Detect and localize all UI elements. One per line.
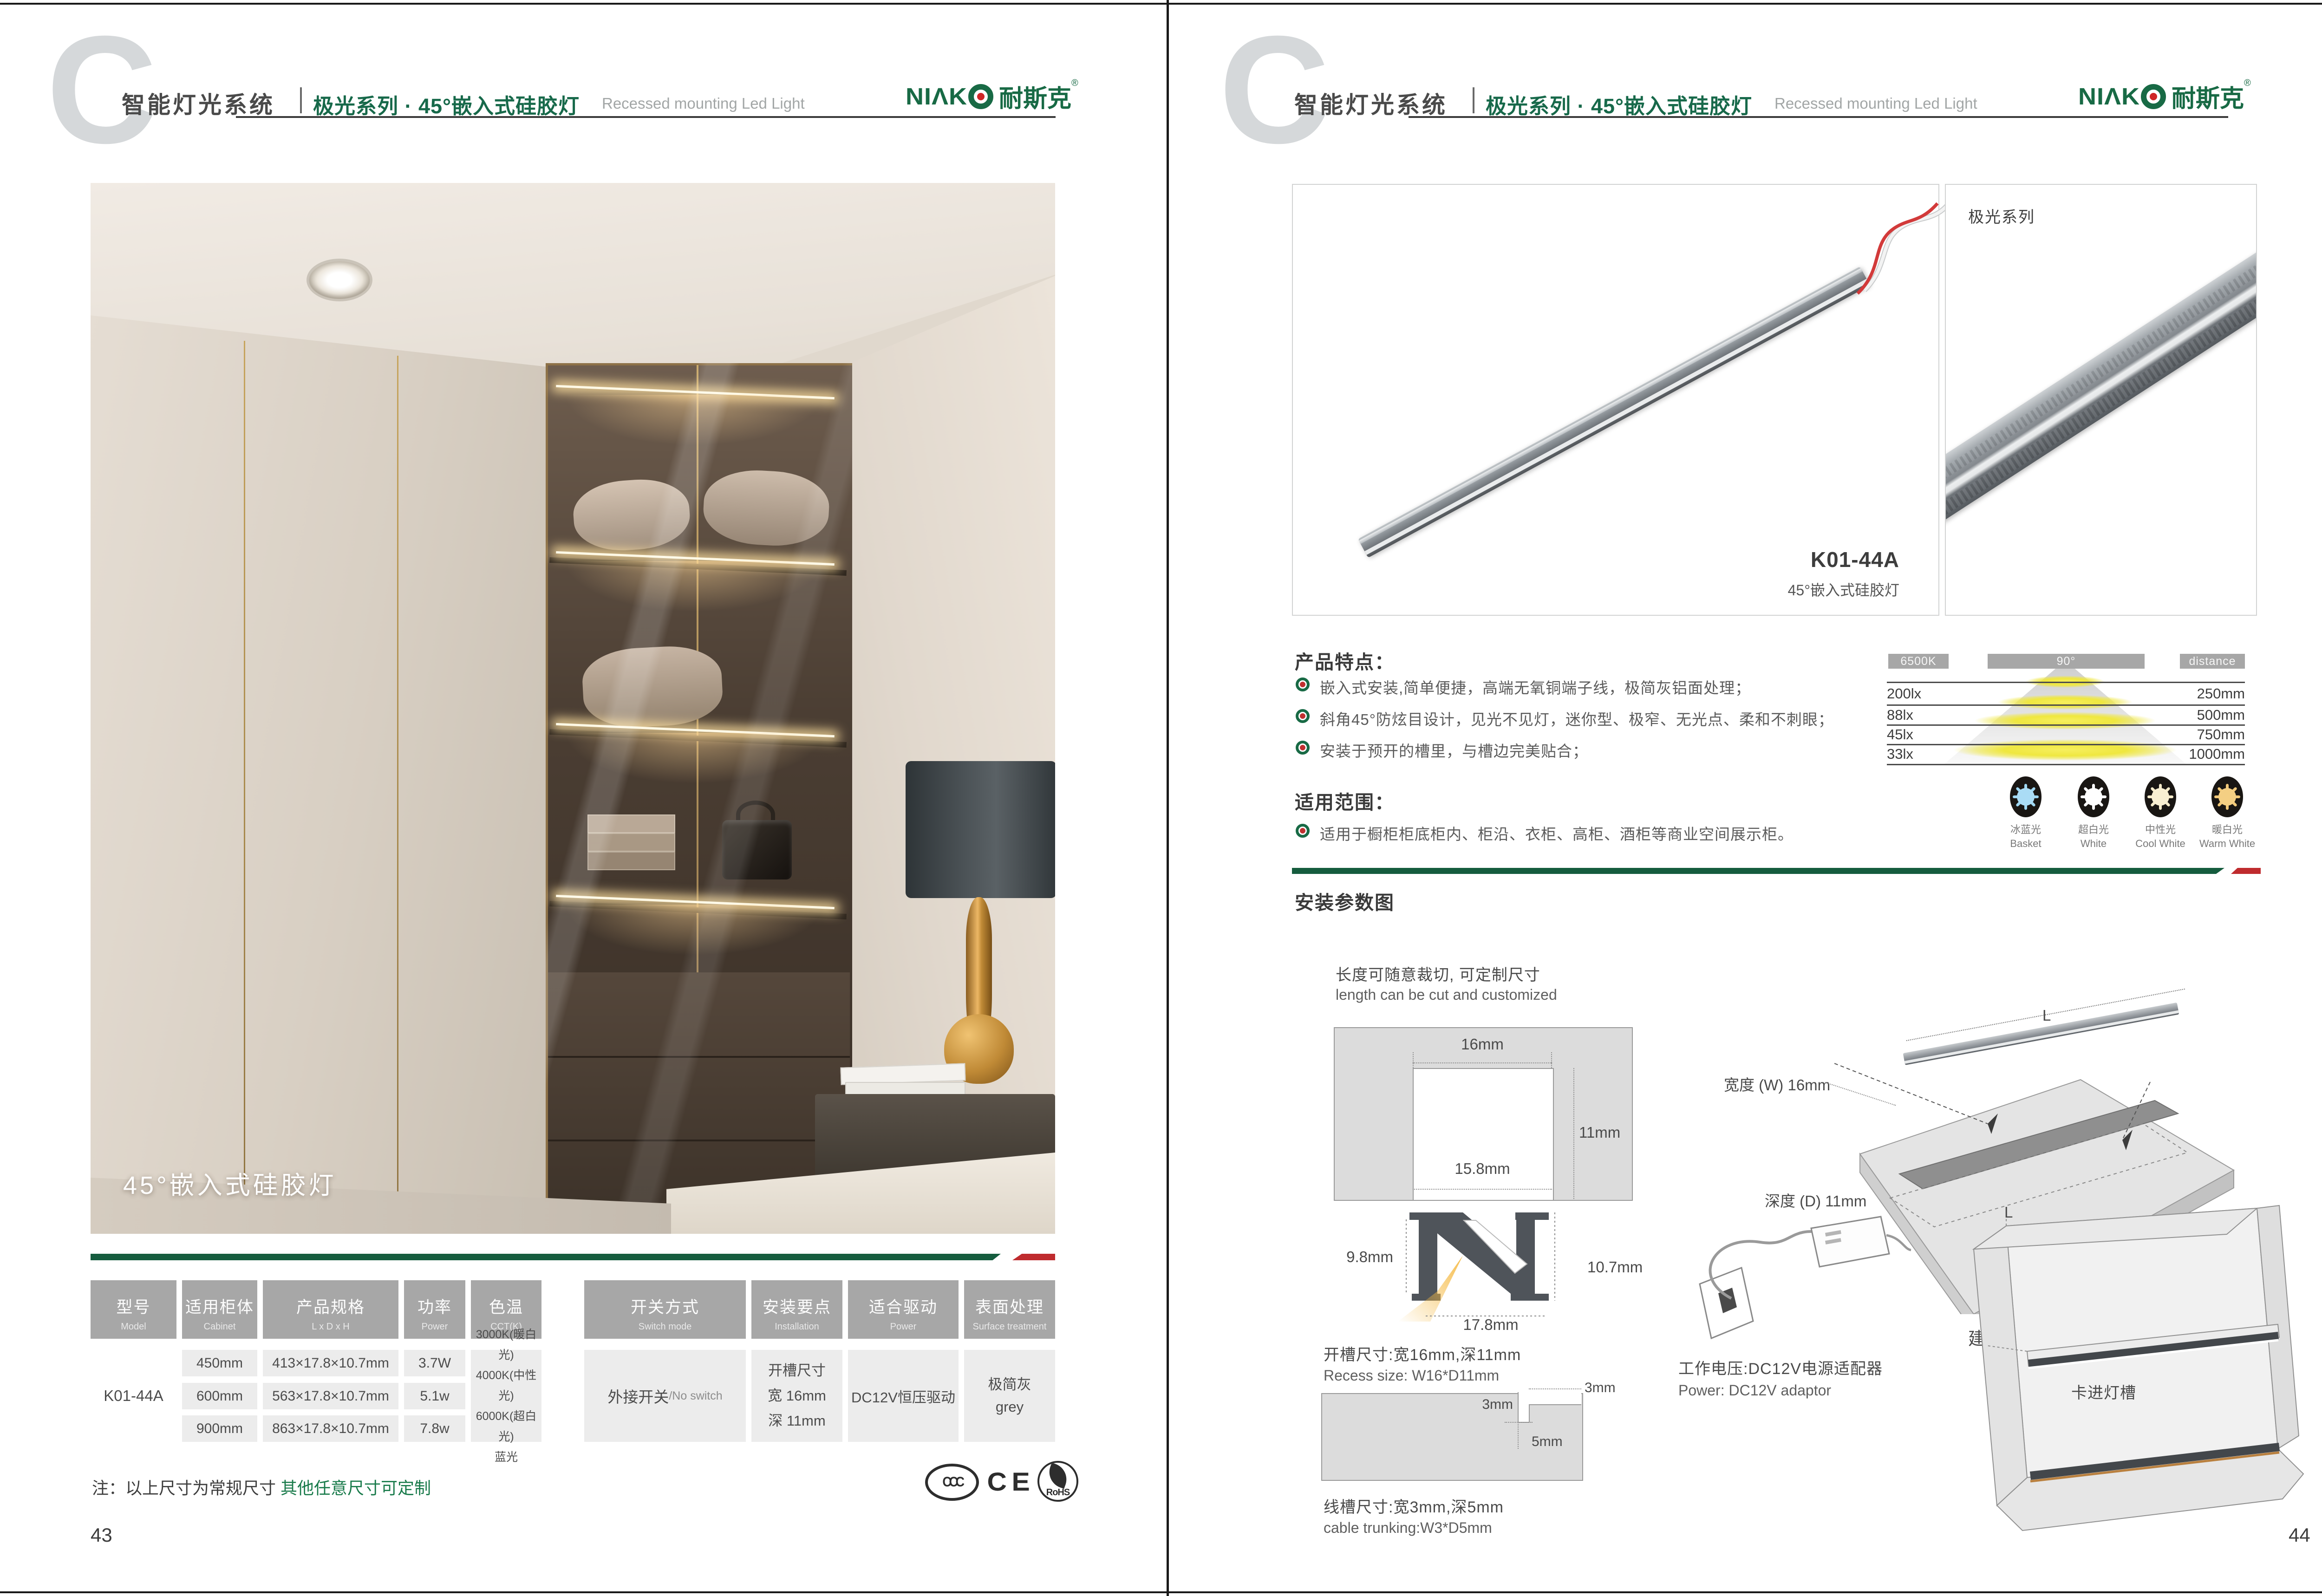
brand-logo: NIΛK 耐斯克 ® — [906, 79, 1078, 114]
recessed-downlight — [309, 261, 370, 299]
recess-size-cn: 开槽尺寸:宽16mm,深11mm — [1324, 1342, 1521, 1365]
distance-value: 500mm — [2166, 707, 2245, 723]
install-heading: 安装参数图 — [1295, 887, 1395, 915]
logo-target-icon — [968, 84, 993, 109]
dim-line — [1573, 1068, 1574, 1199]
power-adaptor-diagram — [1672, 1207, 1913, 1347]
photo-caption: 45°嵌入式硅胶灯 — [123, 1165, 337, 1201]
page-title: 智能灯光系统 — [1294, 86, 1448, 120]
col-header-driver: 适合驱动Power — [848, 1280, 959, 1339]
wire-leads — [1839, 195, 1960, 297]
feature-item: 斜角45°防炫目设计，见光不见灯，迷你型、极窄、无光点、柔和不刺眼； — [1320, 707, 1834, 730]
distance-value: 1000mm — [2166, 746, 2245, 762]
accent-bar-green — [1292, 868, 2224, 874]
scope-heading: 适用范围： — [1295, 787, 1395, 814]
cell-power-900: 7.8w — [404, 1415, 465, 1442]
brand-logo: NIΛK 耐斯克 ® — [2078, 79, 2251, 114]
power-note-en: Power: DC12V adaptor — [1678, 1382, 1831, 1399]
glass-reflection — [546, 363, 852, 1234]
groove-notch — [1413, 1068, 1554, 1200]
subtitle-english: Recessed mounting Led Light — [602, 95, 805, 112]
lamp-label: 暖白光Warm White — [2192, 823, 2262, 851]
logo-latin-text: NIΛK — [906, 83, 967, 110]
cell-model: K01-44A — [91, 1350, 176, 1442]
bullet-icon — [1296, 741, 1310, 755]
accent-bar-green — [91, 1254, 1001, 1260]
cell-cabinet-450: 450mm — [182, 1350, 257, 1376]
board-length-label: L — [2042, 1007, 2051, 1024]
beam-spot — [1954, 739, 2177, 761]
product-name: 45°嵌入式硅胶灯 — [1714, 579, 1899, 600]
door-seam — [244, 341, 245, 1232]
feature-item: 嵌入式安装,简单便捷，高端无氧铜端子线，极简灰铝面处理； — [1320, 676, 1751, 698]
chart-gridline — [1887, 682, 2245, 683]
cell-power-450: 3.7W — [404, 1350, 465, 1376]
profile-section-diagram — [1398, 1201, 1584, 1322]
cell-surface: 极简灰 grey — [964, 1350, 1055, 1442]
lamp-label: 超白光White — [2059, 823, 2128, 851]
lamp-icon-cool-white — [2145, 776, 2176, 817]
title-separator — [300, 87, 302, 113]
photometry-angle-header: 90° — [1988, 654, 2145, 669]
clip-label: 卡进灯槽 — [2043, 1380, 2164, 1403]
groove-bottom-dim: 15.8mm — [1413, 1160, 1552, 1178]
top-border-line — [0, 3, 2322, 5]
leaf-icon — [1045, 1463, 1071, 1489]
col-header-spec: 产品规格L x D x H — [263, 1280, 398, 1339]
trunking-slot — [1518, 1392, 1530, 1423]
cell-power-600: 5.1w — [404, 1383, 465, 1409]
registered-mark: ® — [1071, 78, 1078, 89]
logo-chinese-text: 耐斯克 — [999, 79, 1071, 114]
beam-spot — [1975, 712, 2156, 730]
profile-closeup — [1945, 249, 2257, 528]
series-label: 极光系列 — [1968, 204, 2035, 227]
cell-cabinet-900: 900mm — [182, 1415, 257, 1442]
lamp-icon-white — [2078, 776, 2109, 817]
lamp-shade — [906, 761, 1055, 898]
cut-note-cn: 长度可随意裁切, 可定制尺寸 — [1336, 962, 1540, 985]
photometry-distance-header: distance — [2180, 654, 2245, 669]
profile-ribs — [1945, 258, 2257, 499]
trunking-en: cable trunking:W3*D5mm — [1324, 1519, 1492, 1537]
page-divider-line — [1167, 0, 1169, 1596]
cell-switch: 外接开关 /No switch — [584, 1350, 746, 1442]
dim-line — [1518, 1422, 1519, 1449]
series-subtitle: 极光系列 · 45°嵌入式硅胶灯 — [313, 89, 580, 119]
beam-spot — [1998, 695, 2133, 710]
wardrobe-doors — [91, 301, 546, 1234]
page-number-left: 43 — [91, 1524, 112, 1546]
dim-line — [1413, 1189, 1552, 1190]
chart-gridline — [1887, 744, 2245, 745]
cut-note-en: length can be cut and customized — [1336, 986, 1557, 1003]
distance-value: 750mm — [2166, 726, 2245, 743]
trunk-depth-dim: 5mm — [1532, 1434, 1563, 1450]
profile-left-dim: 9.8mm — [1324, 1248, 1393, 1266]
table-note: 注：以上尺寸为常规尺寸 其他任意尺寸可定制 — [92, 1475, 431, 1499]
product-code: K01-44A — [1714, 547, 1899, 572]
bottom-border-line — [0, 1591, 2322, 1593]
door-seam — [397, 356, 398, 1233]
trunk-top-dim: 3mm — [1585, 1380, 1616, 1396]
photometry-cct-header: 6500K — [1888, 654, 1949, 669]
distance-value: 250mm — [2166, 685, 2245, 702]
lux-value: 88lx — [1887, 707, 1966, 723]
catalog-spread: C 智能灯光系统 极光系列 · 45°嵌入式硅胶灯 Recessed mount… — [0, 0, 2322, 1596]
trunking-cn: 线槽尺寸:宽3mm,深5mm — [1324, 1494, 1504, 1517]
cabinet-install-diagram — [1932, 1198, 2322, 1556]
accent-bar-red — [2231, 868, 2261, 874]
rohs-cert-icon: RoHS — [1037, 1461, 1078, 1502]
power-note-cn: 工作电压:DC12V电源适配器 — [1678, 1356, 1883, 1379]
ce-cert-icon: CE — [987, 1466, 1035, 1497]
col-header-model: 型号Model — [91, 1280, 176, 1339]
lux-value: 45lx — [1887, 726, 1966, 743]
bullet-icon — [1296, 709, 1310, 723]
dim-line — [1413, 1062, 1552, 1063]
chart-gridline — [1887, 704, 2245, 706]
profile-right-dim: 10.7mm — [1587, 1258, 1643, 1276]
cell-driver: DC12V恒压驱动 — [848, 1350, 959, 1442]
chart-gridline — [1887, 764, 2245, 765]
col-header-power: 功率Power — [404, 1280, 465, 1339]
recess-size-en: Recess size: W16*D11mm — [1324, 1367, 1499, 1384]
groove-top-dim: 16mm — [1413, 1036, 1552, 1053]
board-width-label: 宽度 (W) 16mm — [1724, 1073, 1830, 1095]
wardrobe-photo: 45°嵌入式硅胶灯 — [91, 183, 1055, 1234]
bullet-icon — [1296, 677, 1310, 691]
lamp-label: 中性光Cool White — [2126, 823, 2195, 851]
accent-bar-red — [1012, 1254, 1055, 1260]
page-number-right: 44 — [2289, 1524, 2310, 1546]
lux-value: 33lx — [1887, 746, 1966, 762]
cell-cabinet-600: 600mm — [182, 1383, 257, 1409]
title-separator — [1473, 87, 1474, 113]
profile-detail-box — [1945, 184, 2257, 616]
logo-target-icon — [2141, 84, 2166, 109]
col-header-cabinet: 适用柜体Cabinet — [182, 1280, 257, 1339]
trunking-step — [1529, 1392, 1581, 1405]
header-rule — [236, 116, 1056, 118]
cell-spec-600: 563×17.8×10.7mm — [263, 1383, 398, 1409]
page-title: 智能灯光系统 — [122, 86, 275, 120]
lamp-icon-warm-white — [2211, 776, 2243, 817]
dim-line — [1529, 1388, 1581, 1389]
cell-spec-450: 413×17.8×10.7mm — [263, 1350, 398, 1376]
col-header-installation: 安装要点Installation — [751, 1280, 842, 1339]
dim-line — [1505, 1422, 1533, 1423]
lamp-label: 冰蓝光Basket — [1991, 823, 2061, 851]
col-header-surface: 表面处理Surface treatment — [964, 1280, 1055, 1339]
cell-install: 开槽尺寸 宽 16mm 深 11mm — [751, 1350, 842, 1442]
header-rule — [1409, 116, 2228, 118]
dim-line — [1551, 1052, 1552, 1068]
col-header-switch: 开关方式Switch mode — [584, 1280, 746, 1339]
subtitle-english: Recessed mounting Led Light — [1774, 95, 1977, 112]
cell-spec-900: 863×17.8×10.7mm — [263, 1415, 398, 1442]
lamp-icon-ice-blue — [2010, 776, 2042, 817]
feature-item: 安装于预开的槽里，与槽边完美贴合； — [1320, 739, 1588, 761]
lux-value: 200lx — [1887, 685, 1966, 702]
scope-item: 适用于橱柜柜底柜内、柜沿、衣柜、高柜、酒柜等商业空间展示柜。 — [1320, 822, 1794, 844]
trunk-width-dim: 3mm — [1463, 1397, 1513, 1413]
bullet-icon — [1296, 824, 1310, 838]
groove-depth-dim: 11mm — [1579, 1124, 1620, 1141]
profile-bottom-dim: 17.8mm — [1449, 1316, 1533, 1334]
features-heading: 产品特点： — [1295, 646, 1395, 674]
dim-line — [1413, 1052, 1414, 1068]
ccc-cert-icon: CCC — [925, 1464, 979, 1501]
cell-cct: 3000K(暖白光) 4000K(中性光) 6000K(超白光) 蓝光 — [471, 1350, 541, 1442]
series-subtitle: 极光系列 · 45°嵌入式硅胶灯 — [1486, 89, 1752, 119]
profile-ribs — [1945, 282, 2257, 525]
chart-gridline — [1887, 724, 2245, 726]
